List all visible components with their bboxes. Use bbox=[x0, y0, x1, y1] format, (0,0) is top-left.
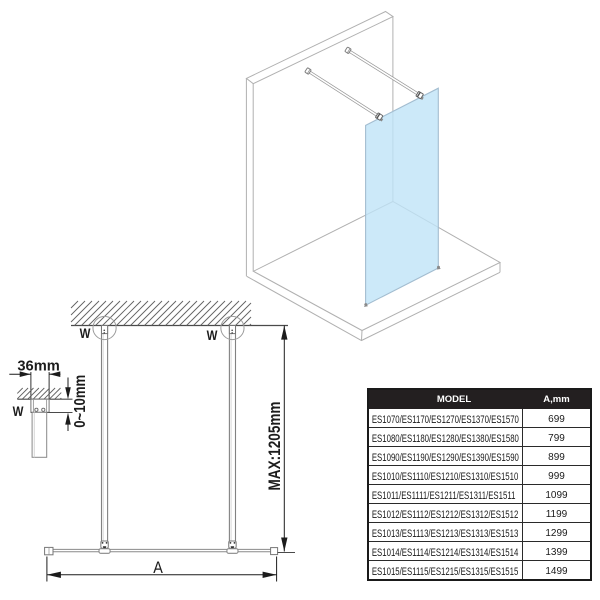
svg-text:36mm: 36mm bbox=[17, 358, 60, 375]
svg-text:W: W bbox=[207, 327, 218, 343]
svg-text:0~10mm: 0~10mm bbox=[72, 375, 89, 428]
svg-text:MAX:1205mm: MAX:1205mm bbox=[265, 402, 284, 491]
svg-text:W: W bbox=[13, 403, 24, 419]
svg-text:A: A bbox=[153, 558, 163, 577]
svg-text:W: W bbox=[80, 325, 91, 341]
